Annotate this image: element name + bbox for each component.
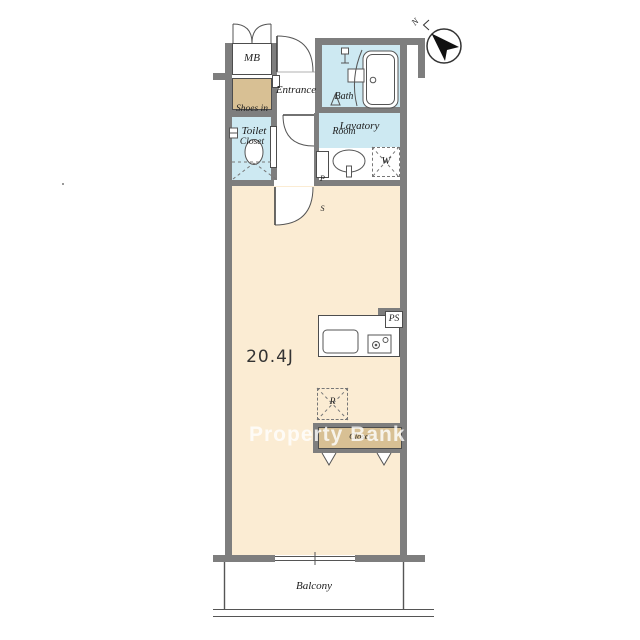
living-area-label: 20.4J [238,348,302,368]
toilet-label: Toilet [236,125,272,138]
bathtub-icon [363,51,398,108]
stray-dot [62,183,64,185]
watermark: Property Bank [249,423,406,447]
kitchen-sink-icon [323,330,358,353]
mb-label: MB [232,52,272,65]
ps-upper-line1: P [316,174,329,184]
stove-burner-dot [375,344,377,346]
ps-upper-line2: S [316,204,329,214]
hanger-icon-right [377,453,391,465]
bathtub-drain [370,77,376,83]
pipe-space-upper-label: P S [316,154,329,234]
mb-door-swing-icon [233,24,271,43]
floor-plan: N MB Shoes in Closet Entrance Bath Room … [0,0,640,640]
compass-north-label: N [409,15,422,28]
entrance-label: Entrance [268,84,324,97]
shoes-in-closet-line2: Closet [232,137,272,148]
balcony-label: Balcony [264,580,364,593]
compass-chevron [424,20,430,30]
refrigerator-label: R [317,397,348,408]
bath-room-label: Bath Room [322,68,366,160]
shoes-in-closet-line1: Shoes in [232,104,272,115]
lavatory-label: Lavatory [319,120,400,133]
hanger-icon-left [322,453,336,465]
main-door-swing-fill [275,187,313,225]
bath-room-line1: Bath [322,91,366,103]
hall-door-swing-fill [283,115,314,146]
shower-icon [342,48,349,54]
lavatory-tap [347,166,352,177]
kitchen-ps-label: PS [385,311,403,328]
entrance-door-swing-fill [277,36,313,72]
shower-pipe [341,54,349,63]
washing-machine-label: W [372,155,400,168]
